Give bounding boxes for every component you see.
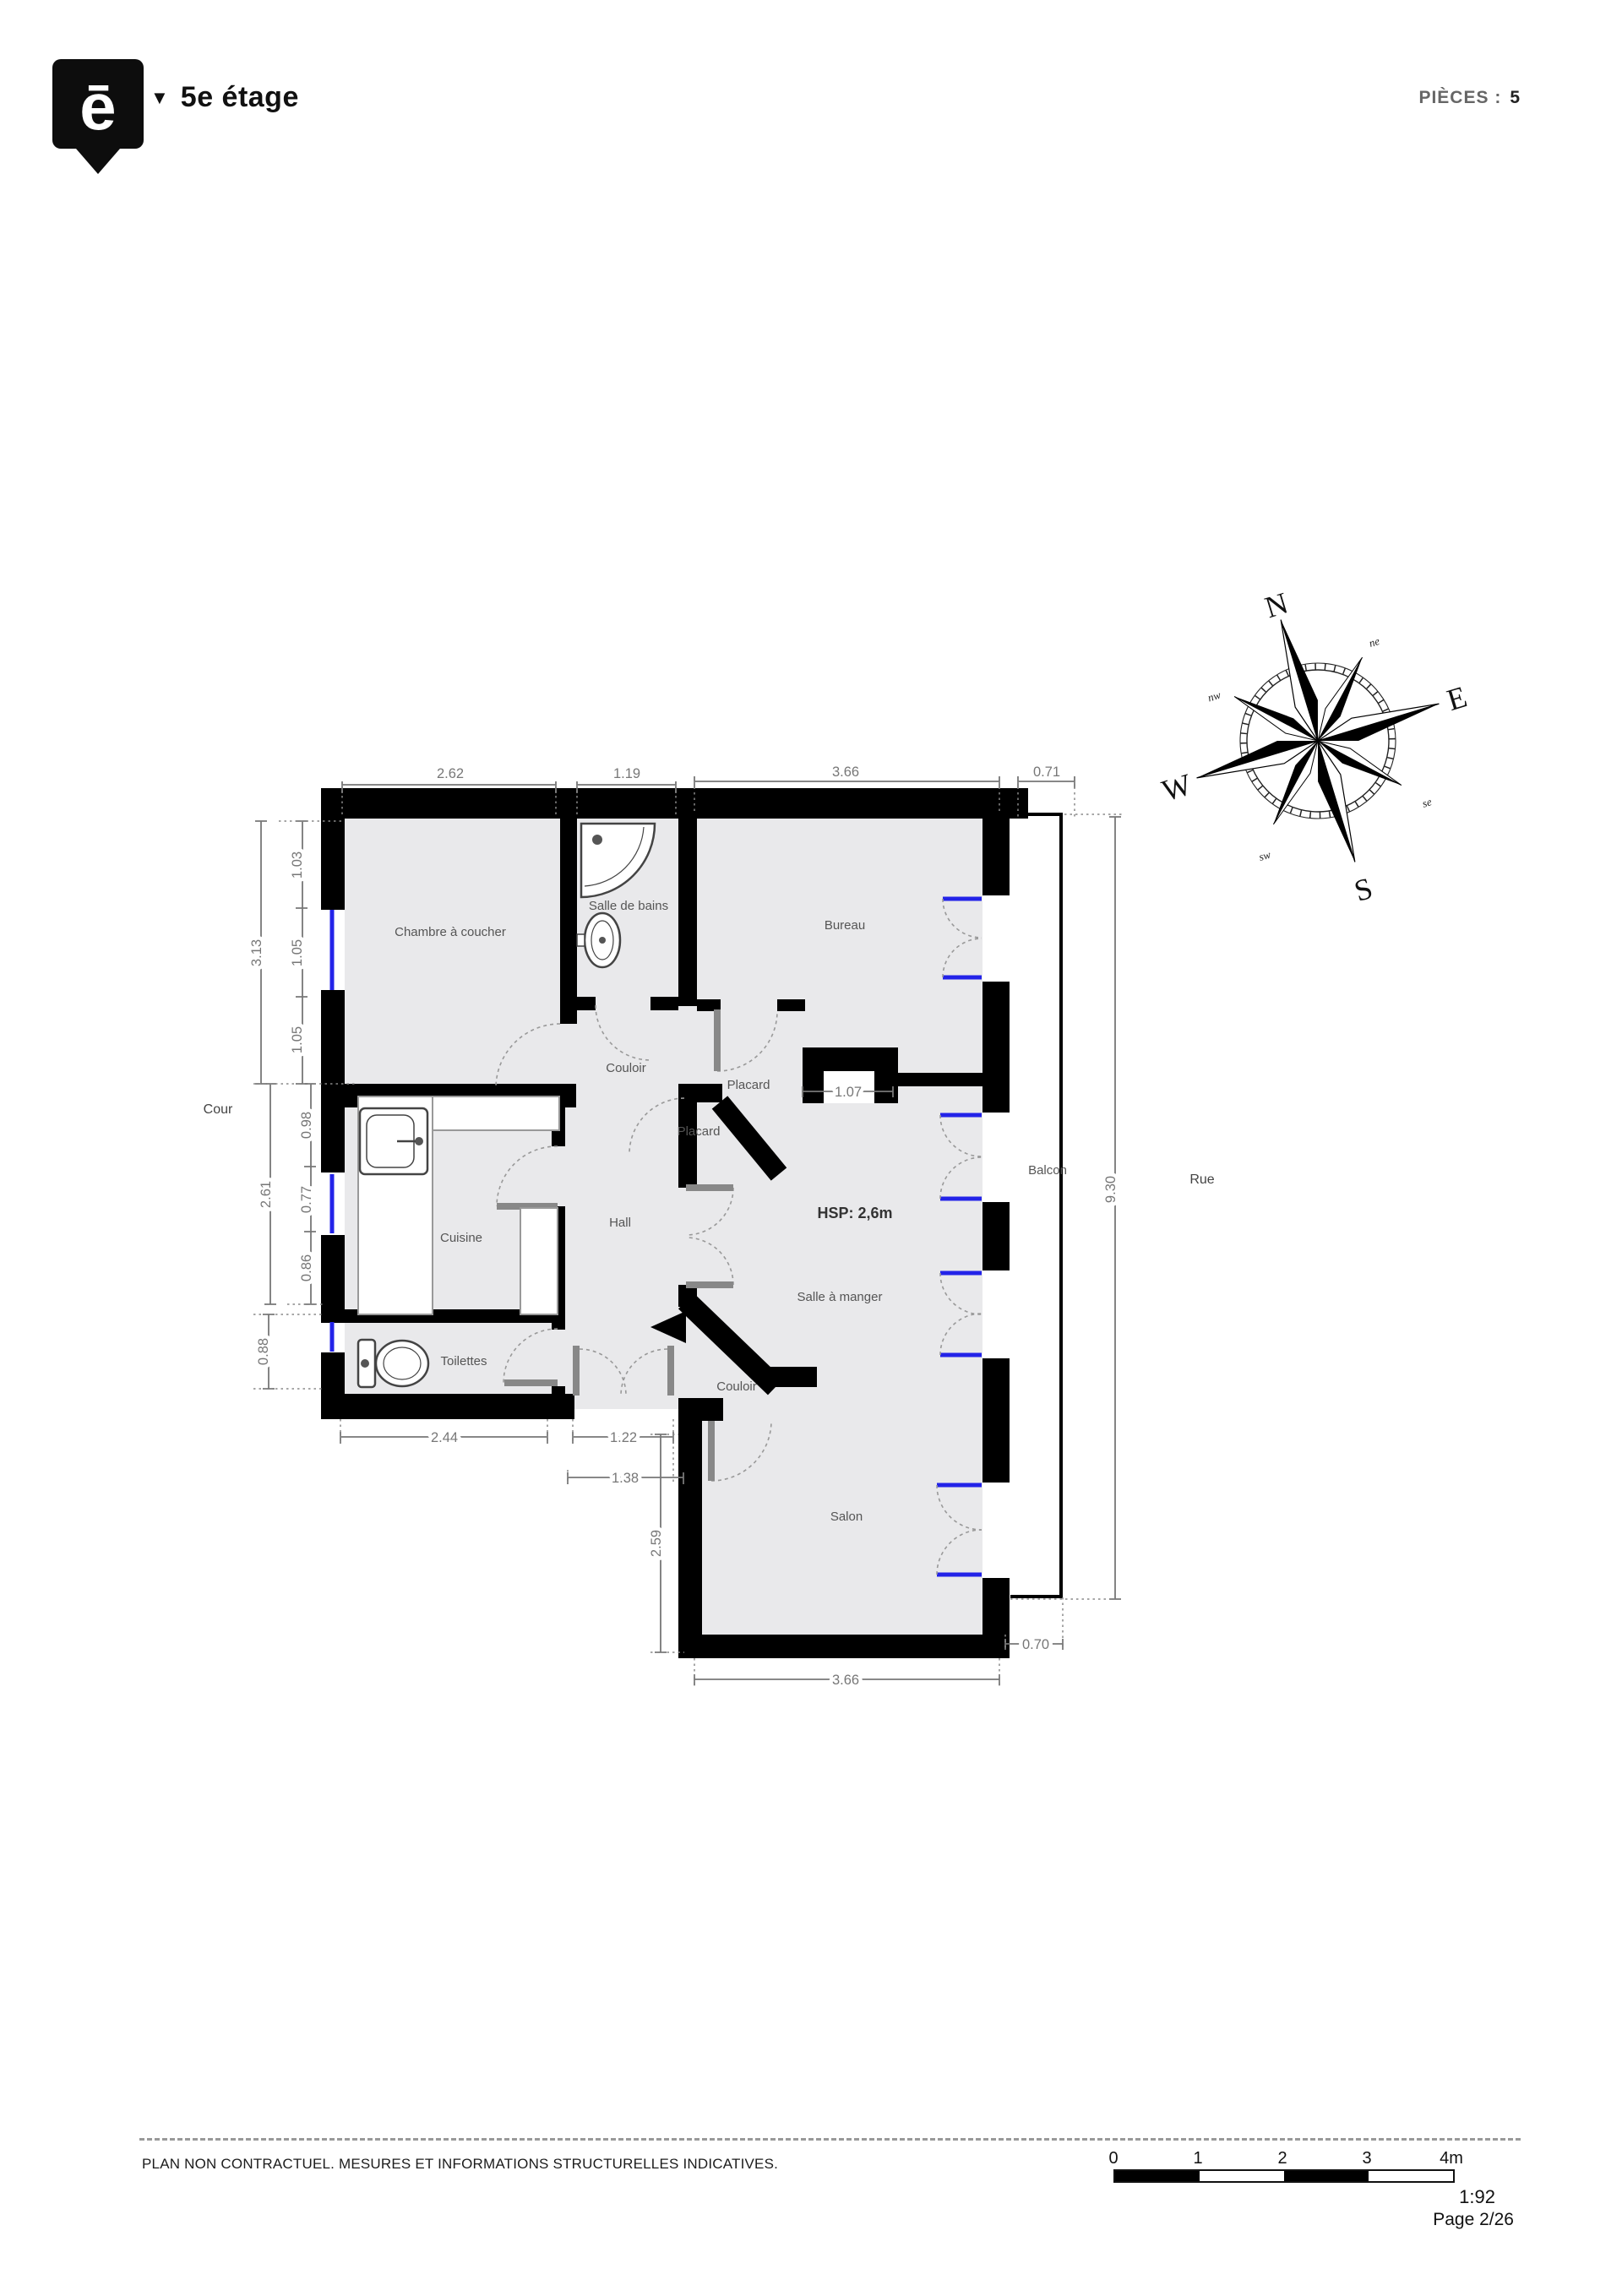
dimension-label: 2.61 <box>259 1181 274 1208</box>
scale-legend: 01234m 1:92 Page 2/26 <box>1113 2149 1495 2183</box>
footer-divider <box>139 2138 1521 2141</box>
room-label: Rue <box>1189 1172 1214 1187</box>
room-label: Hall <box>609 1216 631 1230</box>
room-label: Toilettes <box>440 1354 487 1368</box>
scale-tick: 3 <box>1362 2149 1371 2168</box>
balcony-outline <box>1010 814 1061 1597</box>
room-label: Chambre à coucher <box>395 925 506 939</box>
dimension-label: 0.77 <box>299 1186 314 1213</box>
scale-bar-segment <box>1200 2171 1284 2181</box>
kitchen-sink <box>360 1108 427 1174</box>
scale-bar-segment <box>1369 2171 1453 2181</box>
compass-star <box>1151 574 1485 908</box>
room-label: Cour <box>204 1102 233 1117</box>
room-label: Cuisine <box>440 1231 482 1245</box>
compass-rose: NESW neseswnw <box>1115 544 1516 954</box>
dimension-label: 2.62 <box>437 766 464 781</box>
compass-cardinal: E <box>1443 679 1471 717</box>
room-label: Bureau <box>825 918 865 933</box>
compass-minor: sw <box>1257 848 1272 863</box>
scale-tick: 2 <box>1277 2149 1287 2168</box>
dimension-label: 1.07 <box>835 1085 862 1100</box>
dimension-label: 2.59 <box>649 1530 664 1557</box>
dimension-label: 9.30 <box>1103 1176 1119 1203</box>
room-label: Salle à manger <box>797 1290 883 1304</box>
scale-tick: 1 <box>1193 2149 1202 2168</box>
dimension-label: 1.05 <box>290 1026 305 1053</box>
dimension-label: 3.13 <box>249 939 264 966</box>
scale-bar-segment <box>1115 2171 1200 2181</box>
dimension-label: 2.44 <box>431 1430 458 1445</box>
dimension-label: 0.70 <box>1022 1637 1049 1652</box>
room-label: Salle de bains <box>589 899 668 913</box>
scale-bar <box>1113 2169 1455 2183</box>
dimension-label: 1.05 <box>290 939 305 966</box>
scale-tick-labels: 01234m <box>1113 2149 1495 2168</box>
room-label: Couloir <box>606 1061 646 1075</box>
dimension-label: 3.66 <box>832 764 859 780</box>
scale-tick: 4m <box>1440 2149 1463 2168</box>
room-label: Balcon <box>1028 1163 1067 1178</box>
compass-cardinal: W <box>1158 767 1195 808</box>
room-label: Couloir <box>716 1379 757 1394</box>
dimension-label: 1.19 <box>613 766 640 781</box>
scale-bar-segment <box>1284 2171 1369 2181</box>
dimension-label: 0.98 <box>299 1112 314 1139</box>
compass-cardinal: N <box>1261 585 1293 624</box>
floorplan-page: ē ▼ 5e étage PIÈCES :5 <box>0 0 1622 2296</box>
dimension-label: 1.22 <box>610 1430 637 1445</box>
floorplan-drawing: 2.621.193.660.711.031.051.053.130.980.77… <box>0 0 1622 2296</box>
room-label: Placard <box>727 1078 770 1092</box>
dimension-label: 1.03 <box>290 851 305 879</box>
compass-cardinal: S <box>1350 871 1376 908</box>
dimension-label: 0.88 <box>256 1338 271 1365</box>
scale-ratio: 1:92 <box>1459 2186 1495 2208</box>
room-label: Salon <box>830 1510 863 1524</box>
disclaimer-text: PLAN NON CONTRACTUEL. MESURES ET INFORMA… <box>142 2156 778 2173</box>
compass-minor: nw <box>1206 688 1222 705</box>
toilet <box>358 1340 428 1387</box>
dimension-label: 3.66 <box>832 1673 859 1688</box>
room-label: Placard <box>678 1124 721 1139</box>
dimension-label: 0.86 <box>299 1254 314 1281</box>
page-number: Page 2/26 <box>1433 2210 1514 2230</box>
scale-tick: 0 <box>1108 2149 1118 2168</box>
room-label: HSP: 2,6m <box>817 1205 892 1221</box>
compass-minor: ne <box>1368 634 1381 650</box>
dimension-label: 1.38 <box>612 1471 639 1486</box>
dimension-label: 0.71 <box>1033 764 1060 780</box>
compass-minor: se <box>1421 795 1434 810</box>
